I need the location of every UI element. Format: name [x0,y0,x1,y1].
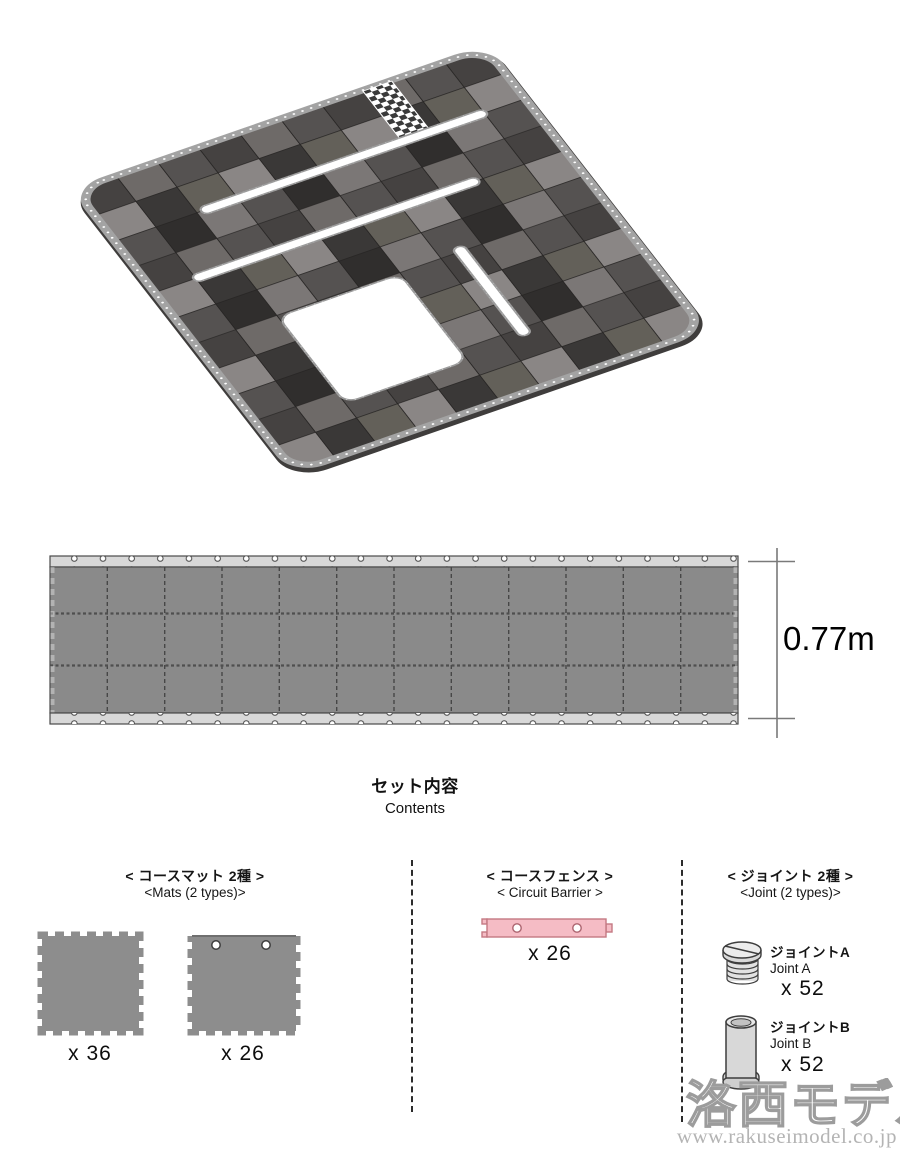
mat-b-hole [212,941,220,949]
joint-a-label-en: Joint A [770,961,811,976]
mat-type-b-illustration [184,928,304,1042]
barrier-heading-en: < Circuit Barrier > [460,885,640,901]
mat-b-count: x 26 [193,1042,293,1066]
assembled-track-illustration [0,0,900,520]
contents-title-en: Contents [315,800,515,817]
joint-a-count: x 52 [781,977,825,1001]
watermark-logo: 洛西モデル [668,1078,900,1130]
joint-b-label-jp: ジョイントB [770,1016,850,1036]
joint-a-icon [718,937,766,991]
contents-title-jp: セット内容 [315,772,515,797]
joints-heading: < ジョイント 2種 > <Joint (2 types)> [698,868,883,901]
joint-b-label-en: Joint B [770,1036,811,1051]
mat-strip-illustration [0,520,900,751]
mats-heading-en: <Mats (2 types)> [60,885,330,901]
joints-heading-en: <Joint (2 types)> [698,885,883,901]
product-sheet: 0.77m セット内容 Contents < コースマット 2種 > <Mats… [0,0,900,1151]
joints-heading-jp: < ジョイント 2種 > [698,868,883,885]
barrier-hole [513,924,521,932]
mats-heading-jp: < コースマット 2種 > [60,868,330,885]
watermark-url: www.rakuseimodel.co.jp [640,1124,897,1149]
strip-top-fence-dots [50,556,738,567]
track-perspective-group [74,48,708,477]
mat-type-a-illustration [34,928,146,1042]
mat-a-count: x 36 [40,1042,140,1066]
barrier-count: x 26 [460,942,640,966]
dimension-label: 0.77m [783,620,875,658]
contents-title: セット内容 Contents [315,772,515,817]
watermark-logo-text: 洛西モデル [686,1078,900,1130]
barrier-heading: < コースフェンス > < Circuit Barrier > [460,868,640,901]
strip-bottom-fence-dots [50,713,738,724]
mats-heading: < コースマット 2種 > <Mats (2 types)> [60,868,330,901]
section-divider-1 [411,860,413,1112]
joint-b-count: x 52 [781,1053,825,1077]
barrier-heading-jp: < コースフェンス > [460,868,640,885]
joint-a-label-jp: ジョイントA [770,941,850,961]
barrier-hole [573,924,581,932]
mat-b-hole [262,941,270,949]
